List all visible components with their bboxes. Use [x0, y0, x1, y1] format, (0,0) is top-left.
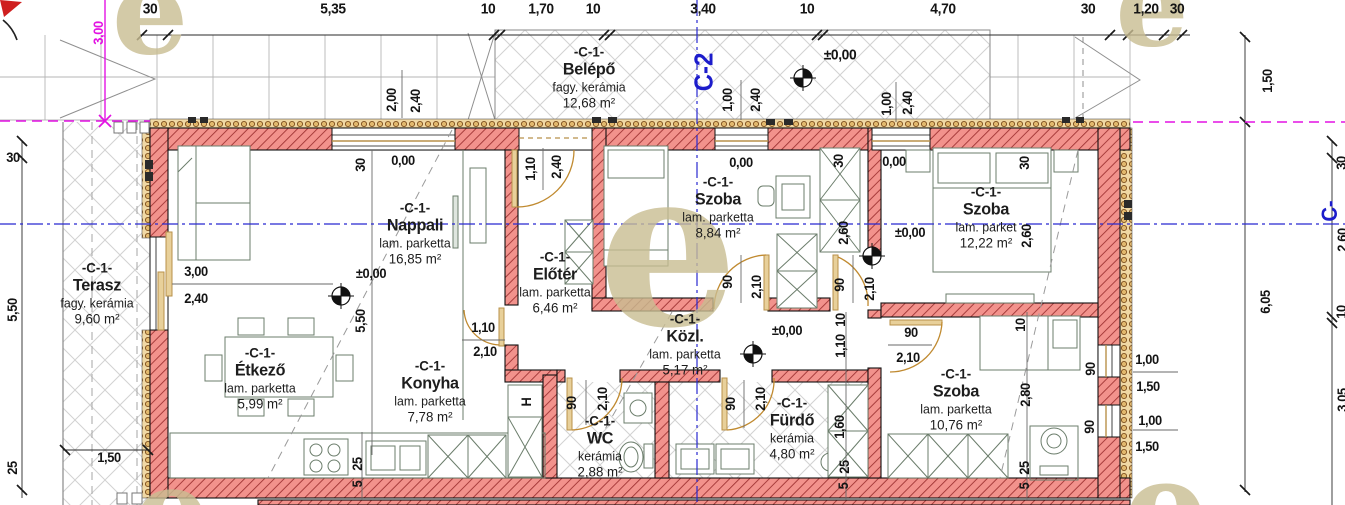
dim-window: 2,40	[184, 290, 208, 306]
dim-window: 90	[1081, 420, 1097, 434]
dim-left: 5,50	[4, 298, 20, 322]
dim-interior: 2,60	[835, 221, 851, 245]
dim-door: 90	[719, 275, 735, 289]
dim-terrace: 1,50	[97, 449, 121, 465]
dim-wall: 30	[352, 158, 368, 172]
dim-window: 2,40	[899, 91, 915, 115]
dim-right-edge: 30	[1333, 156, 1345, 170]
terrace-door	[150, 232, 172, 330]
level-label: 0,00	[391, 152, 415, 168]
room-label-terasz: -C-1-Terasz fagy. kerámia9,60 m²	[60, 260, 133, 327]
dim-interior: 25	[349, 457, 365, 471]
dim-right: 1,50	[1259, 69, 1275, 93]
dim-offset-magenta: 3,00	[90, 21, 106, 45]
floor-plan: e e e e e -C-1-Terasz fagy. kerámia9,60 …	[0, 0, 1345, 505]
dim-interior: 2,60	[1018, 224, 1034, 248]
room-label-etkezo: -C-1-Étkező lam. parketta5,99 m²	[224, 345, 295, 412]
dim-window: 90	[1082, 362, 1098, 376]
dim-window: 2,40	[407, 89, 423, 113]
dim-right-edge: 2,60	[1334, 228, 1345, 252]
dim-window: 2,00	[383, 88, 399, 112]
dim-window: 1,00	[719, 88, 735, 112]
window-nappali	[332, 128, 455, 150]
room-label-eloter: -C-1-Előtér lam. parketta6,46 m²	[519, 249, 590, 316]
dim-door: 2,10	[473, 343, 497, 359]
dim-window: 1,00	[1138, 412, 1162, 428]
dim-top: 10	[586, 1, 601, 18]
dim-wall: 30	[1016, 156, 1032, 170]
dim-window: 1,50	[1136, 378, 1160, 394]
dim-interior: 1,10	[832, 334, 848, 358]
dim-right-edge: 3,05	[1334, 388, 1345, 412]
room-label-szoba1: -C-1-Szoba lam. parketta8,84 m²	[682, 174, 753, 241]
level-label: 0,00	[882, 153, 906, 169]
level-label: ±0,00	[824, 47, 857, 64]
dim-interior: 5	[1016, 483, 1032, 490]
dim-top: 10	[800, 1, 815, 18]
dim-door: 90	[563, 396, 579, 410]
window-right-1	[1098, 345, 1120, 377]
room-label-nappali: -C-1-Nappali lam. parketta16,85 m²	[379, 200, 450, 267]
plan-drawing: e e e e e	[0, 0, 1345, 505]
level-label: 0,00	[729, 154, 753, 170]
room-label-konyha: -C-1-Konyha lam. parketta7,78 m²	[394, 358, 465, 425]
dim-right-edge: 10	[1333, 305, 1345, 319]
window-szoba2	[872, 128, 930, 150]
room-label-belepo: -C-1-Belépő fagy. kerámia12,68 m²	[552, 44, 625, 111]
room-label-furdo: -C-1-Fürdő kerámia4,80 m²	[769, 395, 814, 462]
dim-interior: 5	[835, 483, 851, 490]
room-label-szoba3: -C-1-Szoba lam. parketta10,76 m²	[920, 366, 991, 433]
dim-door: 90	[904, 324, 918, 340]
section-label-c2: C-2	[689, 53, 720, 92]
level-marker	[740, 341, 766, 367]
dim-window: 1,00	[878, 92, 894, 116]
dim-top: 3,40	[690, 1, 715, 18]
dim-window: 1,00	[1135, 351, 1159, 367]
room-label-kozl: -C-1-Közl. lam. parketta5,17 m²	[649, 311, 720, 378]
level-label: ±0,00	[356, 265, 386, 281]
dim-wall: 10	[1012, 318, 1028, 332]
window-right-2	[1098, 405, 1120, 437]
dim-door: 2,10	[594, 387, 610, 411]
dim-window: 1,50	[1135, 438, 1159, 454]
dim-right: 6,05	[1257, 290, 1273, 314]
dim-top: 4,70	[930, 1, 955, 18]
svg-text:e: e	[134, 442, 210, 505]
level-label: ±0,00	[772, 322, 802, 338]
dim-top: 30	[1170, 1, 1185, 18]
dim-top: 5,35	[320, 1, 345, 18]
dim-interior: 5	[349, 481, 365, 488]
appliance-label: H	[518, 398, 534, 407]
dim-interior: 5,50	[352, 309, 368, 333]
dim-top: 30	[143, 1, 158, 18]
room-label-szoba2: -C-1-Szoba lam. parket12,22 m²	[955, 184, 1016, 251]
dim-wall: 30	[830, 154, 846, 168]
dim-left: 25	[4, 461, 20, 475]
entry-opening	[519, 128, 592, 150]
dim-window: 2,40	[747, 88, 763, 112]
dim-door: 90	[831, 278, 847, 292]
dim-door: 2,10	[896, 349, 920, 365]
dim-window: 3,00	[184, 263, 208, 279]
section-label-right: C-	[1317, 200, 1343, 221]
dim-top: 10	[481, 1, 496, 18]
dim-door: 2,10	[752, 387, 768, 411]
level-marker	[328, 283, 354, 309]
dim-door: 90	[722, 397, 738, 411]
dim-top: 30	[1081, 1, 1096, 18]
dim-interior: 2,80	[1017, 383, 1033, 407]
room-label-wc: -C-1-WC kerámia2,88 m²	[577, 413, 622, 480]
dim-door: 2,40	[548, 155, 564, 179]
dim-door: 1,10	[471, 319, 495, 335]
dim-door: 2,10	[861, 277, 877, 301]
north-arrow-icon	[0, 0, 22, 40]
dim-interior: 25	[836, 460, 852, 474]
dim-interior: 25	[1016, 461, 1032, 475]
dim-left: 30	[6, 149, 20, 165]
dim-door: 2,10	[748, 275, 764, 299]
dim-top: 1,20	[1133, 1, 1158, 18]
level-label: ±0,00	[895, 224, 925, 240]
dim-top: 1,70	[528, 1, 553, 18]
dim-door: 1,10	[522, 157, 538, 181]
dim-wall: 10	[832, 313, 848, 327]
dim-interior: 1,60	[831, 415, 847, 439]
